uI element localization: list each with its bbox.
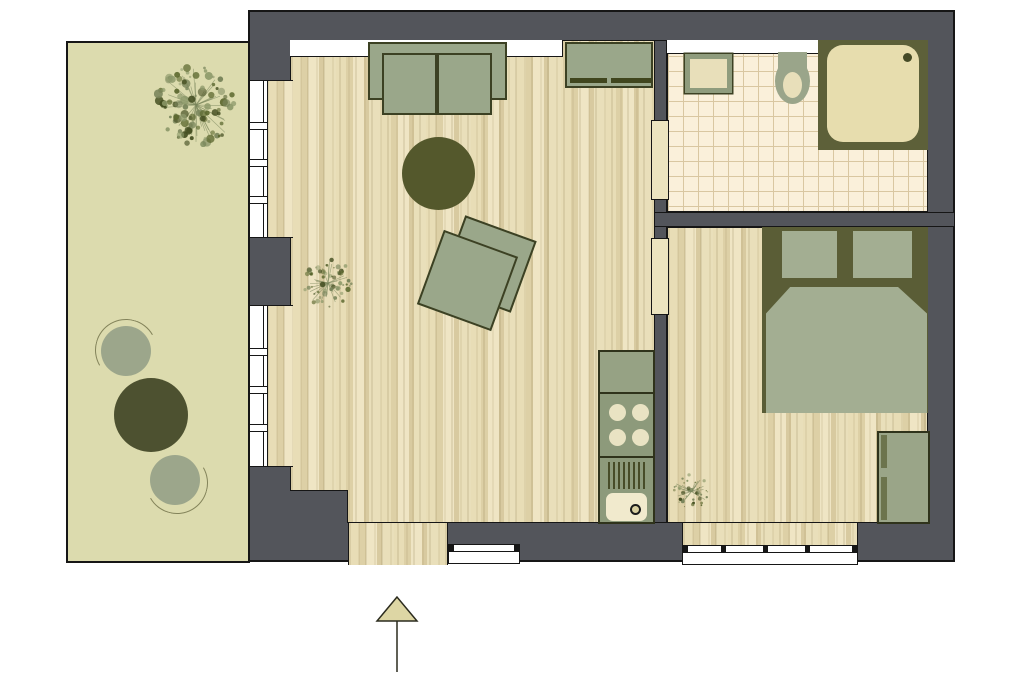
- wall-segment: [290, 490, 348, 523]
- shower-drain: [903, 53, 912, 62]
- balcony-tree: [154, 63, 238, 147]
- wall-bath-to-bedroom: [654, 212, 955, 227]
- floor-plan: [0, 0, 1024, 683]
- living-room-floor-strip-upper: [266, 80, 293, 238]
- kitchen-sink-unit: [600, 456, 653, 522]
- sofa-cushion-left: [382, 53, 437, 115]
- balcony-table: [114, 378, 188, 452]
- bedroom-door: [651, 238, 669, 315]
- bed-pillow-left: [782, 231, 837, 278]
- entrance-arrow: [368, 592, 428, 677]
- wardrobe-door-strip: [881, 435, 887, 520]
- window-divider: [250, 348, 267, 356]
- window-divider: [250, 424, 267, 432]
- balcony-chair-bottom: [150, 455, 200, 505]
- living-room-plant: [302, 257, 354, 309]
- sideboard-front-right: [611, 78, 651, 83]
- bedroom-window-niche: [682, 523, 858, 547]
- sideboard-front-left: [570, 78, 607, 83]
- stove-burner: [609, 429, 626, 446]
- toilet-bowl-inner: [783, 72, 802, 98]
- window-mullion: [763, 546, 768, 553]
- window-divider: [250, 122, 267, 130]
- washbasin: [685, 54, 732, 93]
- window-frame-line: [449, 551, 519, 552]
- stove-burner: [632, 429, 649, 446]
- sink-drainboard: [608, 462, 646, 489]
- window-divider: [250, 159, 267, 167]
- bed: [762, 227, 928, 413]
- shower: [818, 40, 928, 150]
- window-divider: [250, 386, 267, 394]
- living-room-floor-strip-lower: [266, 305, 293, 467]
- kitchen-counter: [600, 352, 653, 394]
- entrance-opening: [348, 523, 448, 565]
- window-mullion: [805, 546, 810, 553]
- window-mullion: [683, 546, 688, 553]
- wardrobe: [877, 431, 930, 524]
- window-frame-line: [683, 552, 857, 553]
- window-mullion: [721, 546, 726, 553]
- bed-pillow-right: [853, 231, 912, 278]
- wardrobe-handle: [881, 468, 887, 477]
- stove-burner: [632, 404, 649, 421]
- balcony-window-lower: [249, 305, 268, 467]
- living-room-bottom-window: [448, 544, 520, 564]
- sofa-cushion-right: [437, 53, 492, 115]
- window-mullion: [449, 545, 454, 552]
- bathroom-door: [651, 120, 669, 200]
- sink-basin: [606, 493, 647, 521]
- stove-burner: [609, 404, 626, 421]
- round-rug: [402, 137, 475, 210]
- balcony-chair-top: [101, 326, 151, 376]
- bed-blanket: [766, 287, 927, 413]
- bedroom-bottom-window: [682, 545, 858, 565]
- kitchenette: [598, 350, 655, 524]
- bedroom-plant: [673, 473, 710, 510]
- balcony-window-upper: [249, 80, 268, 238]
- window-mullion: [514, 545, 519, 552]
- window-mullion: [852, 546, 857, 553]
- kitchen-stove: [600, 392, 653, 458]
- window-divider: [250, 196, 267, 204]
- sink-drain: [630, 504, 641, 515]
- sideboard: [565, 42, 653, 88]
